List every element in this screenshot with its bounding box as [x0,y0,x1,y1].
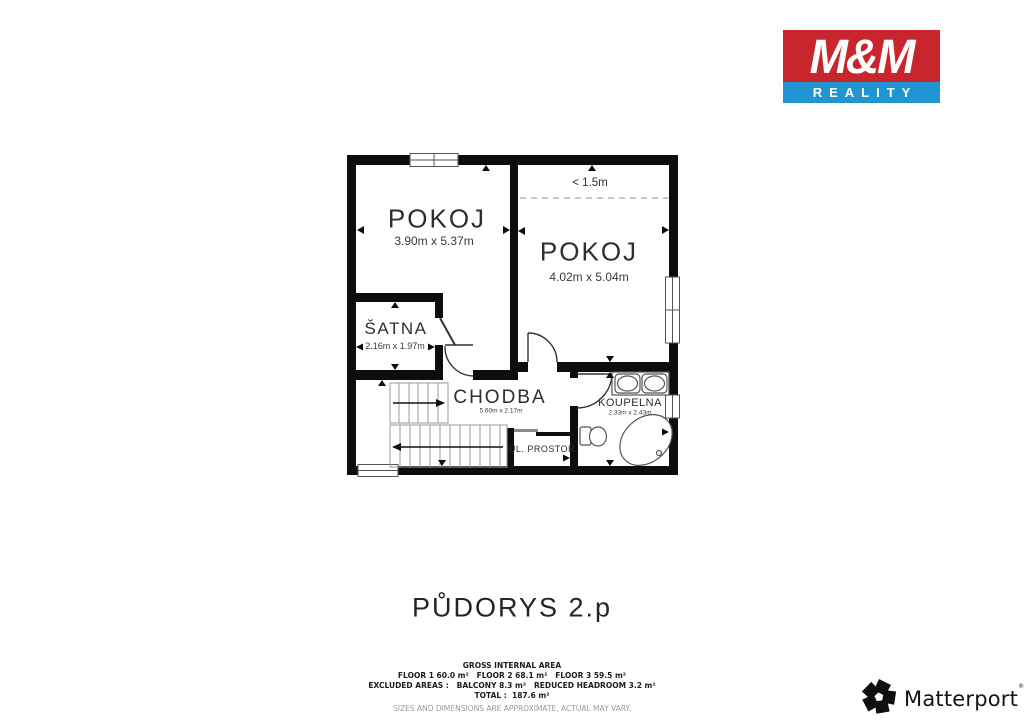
room-dims-koupelna: 2.33m x 2.43m [609,410,652,417]
trademark-symbol: ® [1018,683,1024,690]
room-label-chodba: CHODBA [453,387,546,409]
page-title: PŮDORYS 2.p [412,593,612,624]
sliding-door-icon [514,429,574,436]
matterport-logo: Matterport® [860,678,1024,716]
area-total: TOTAL : 187.6 m² [368,691,655,701]
room-dims-satna: 2.16m x 1.97m [365,341,425,351]
room-dims-chodba: 5.60m x 2.17m [480,408,523,415]
headroom-annotation: < 1.5m [572,177,607,189]
area-excluded: EXCLUDED AREAS : BALCONY 8.3 m² REDUCED … [368,681,655,691]
room-label-koupelna: KOUPELNA [598,397,662,409]
area-summary: GROSS INTERNAL AREA FLOOR 1 60.0 m² FLOO… [368,661,655,714]
room-label-satna: ŠATNA [365,319,428,339]
matterport-wordmark: Matterport® [904,683,1024,711]
room-dims-pokoj-1: 3.90m x 5.37m [394,234,473,248]
area-disclaimer: SIZES AND DIMENSIONS ARE APPROXIMATE, AC… [368,704,655,714]
room-label-pokoj-2: POKOJ [540,237,638,268]
room-label-pokoj-1: POKOJ [388,204,486,235]
floor-plan-page: M&M REALITY [0,0,1024,724]
matterport-icon [860,678,898,716]
bathroom-fixtures [580,372,682,476]
room-label-ul-prostor: ÚL. PROSTOR [509,444,575,454]
room-dims-pokoj-2: 4.02m x 5.04m [549,270,628,284]
area-floors: FLOOR 1 60.0 m² FLOOR 2 68.1 m² FLOOR 3 … [368,671,655,681]
area-heading: GROSS INTERNAL AREA [368,661,655,671]
